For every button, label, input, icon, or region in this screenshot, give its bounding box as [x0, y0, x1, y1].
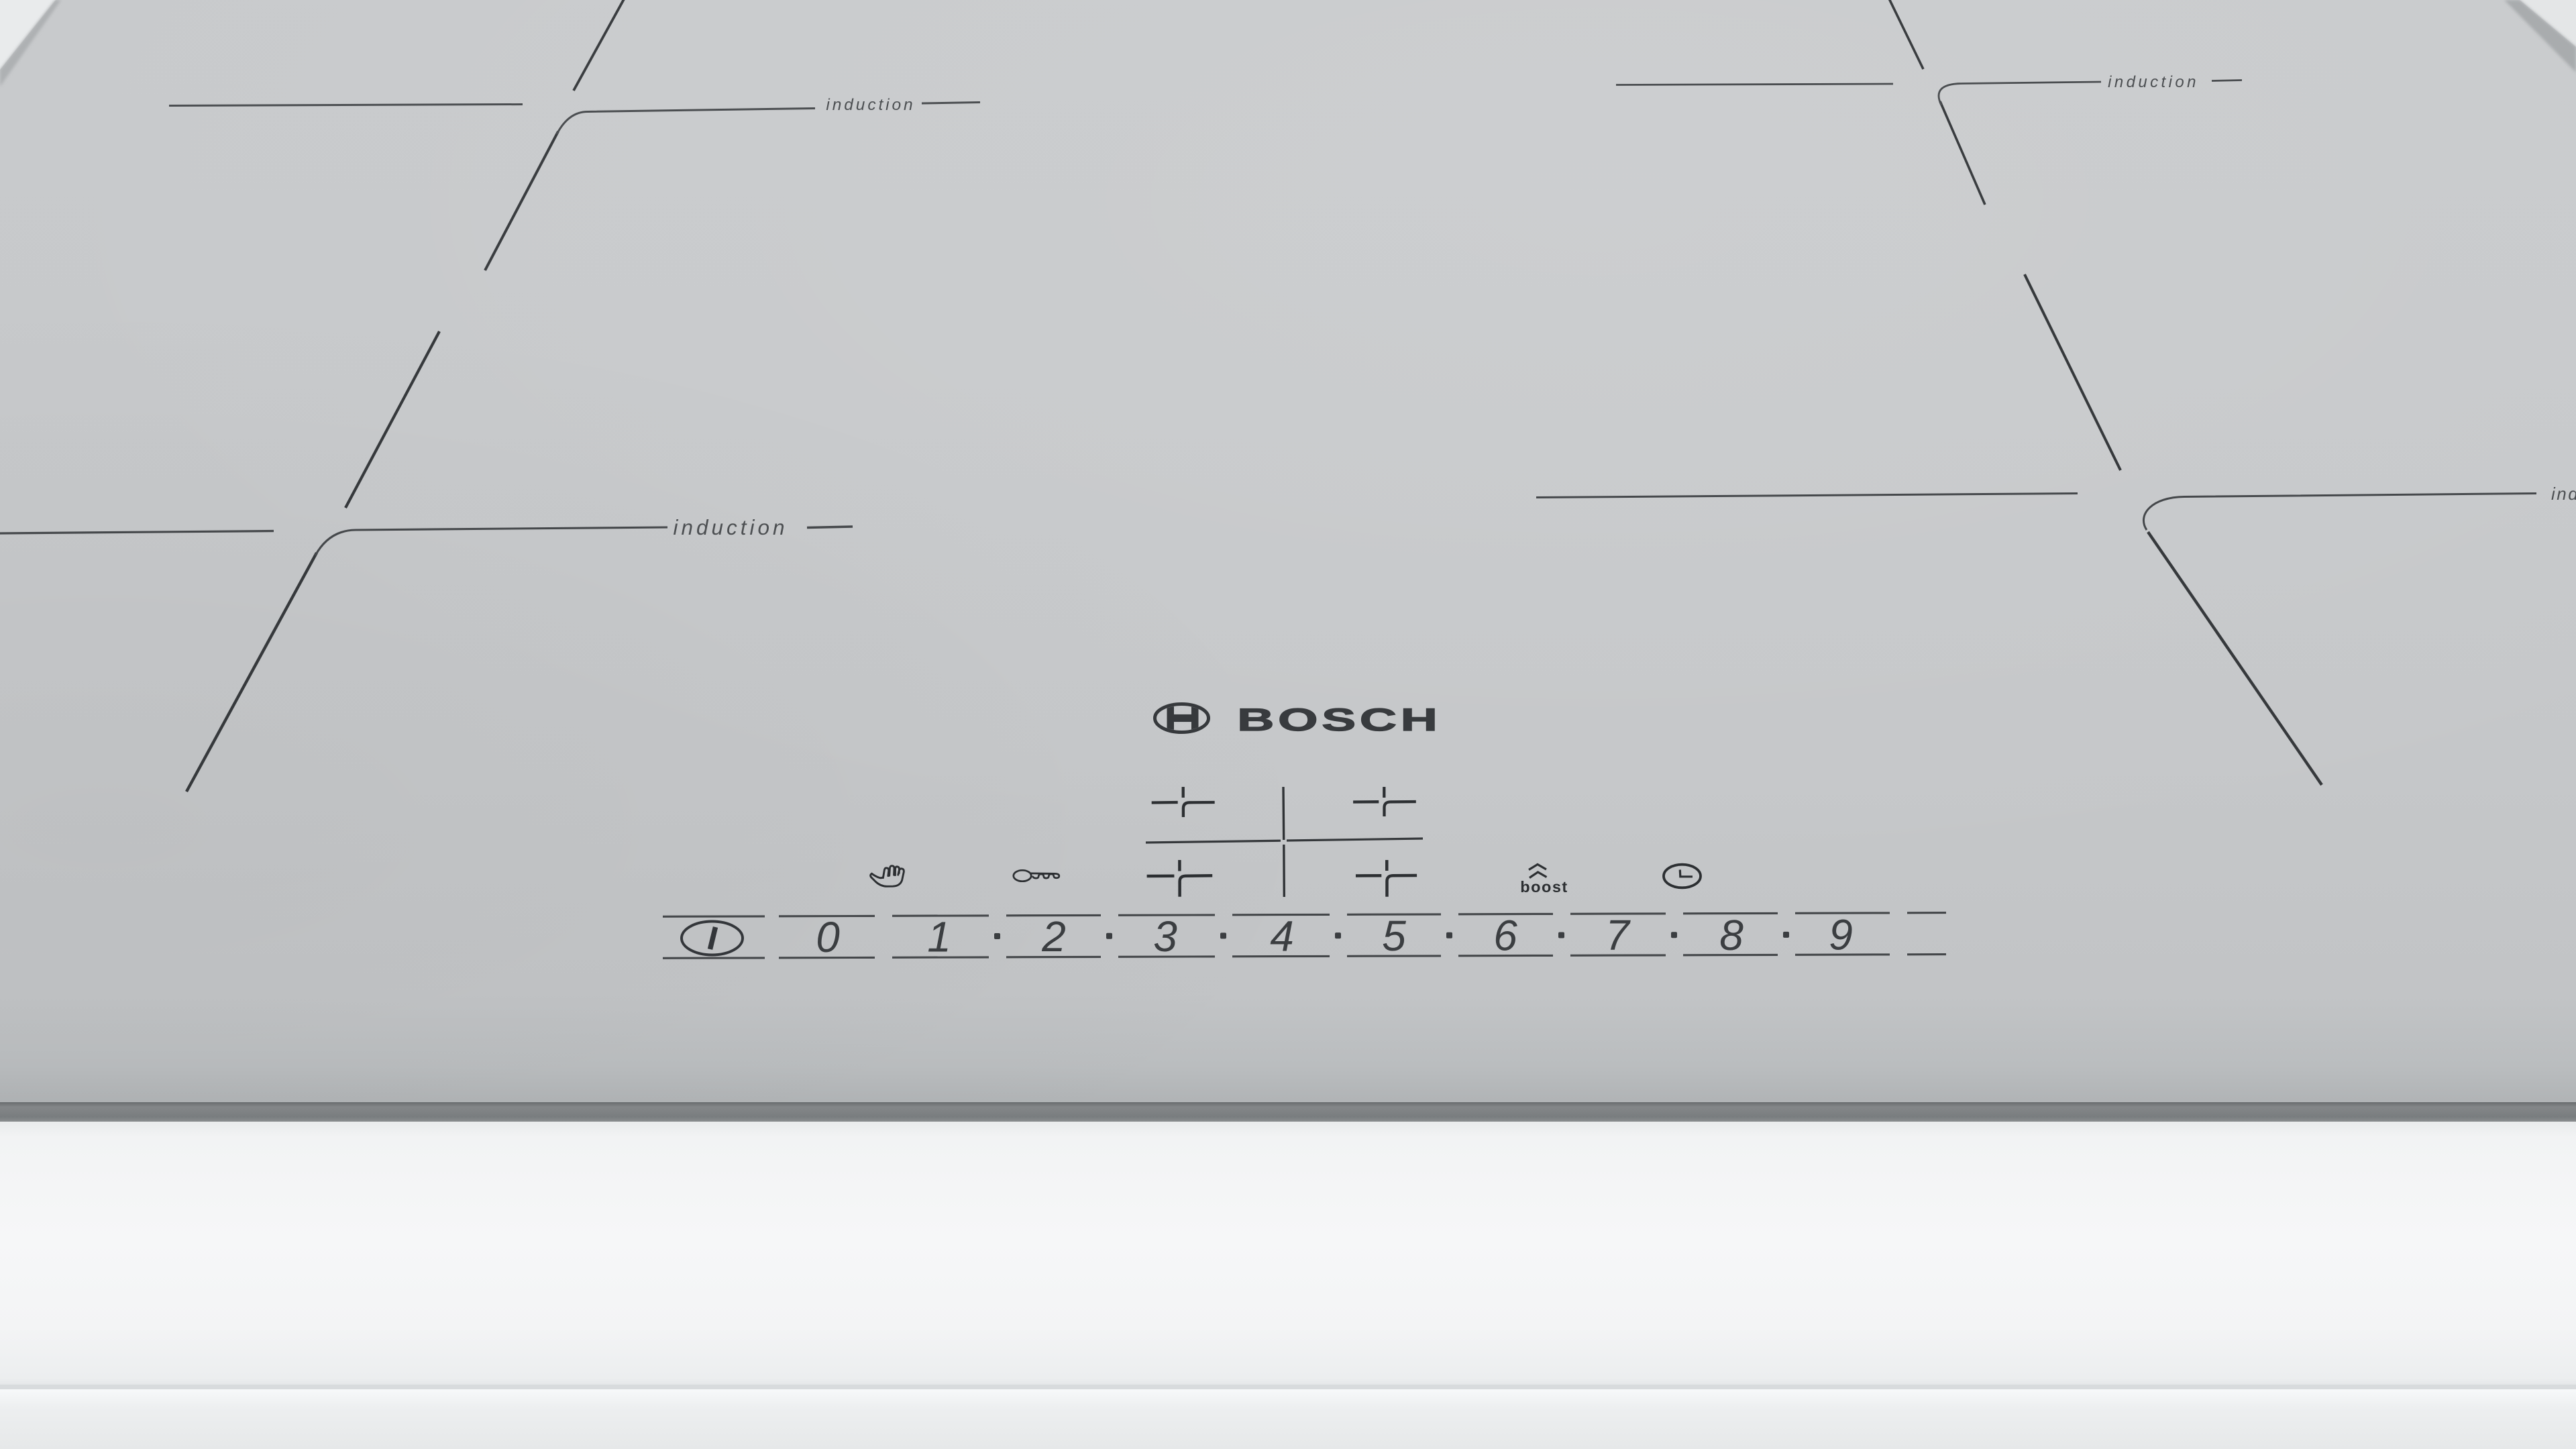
- svg-text:induction: induction: [2551, 484, 2576, 504]
- svg-text:4: 4: [1270, 912, 1294, 960]
- svg-text:2: 2: [1041, 912, 1066, 961]
- svg-text:7: 7: [1605, 911, 1631, 959]
- svg-text:induction: induction: [2108, 73, 2199, 91]
- svg-text:induction: induction: [673, 515, 788, 539]
- svg-text:BOSCH: BOSCH: [1237, 702, 1441, 738]
- svg-text:0: 0: [816, 913, 840, 961]
- svg-text:6: 6: [1493, 912, 1517, 960]
- svg-text:8: 8: [1719, 911, 1743, 959]
- svg-text:9: 9: [1829, 910, 1853, 959]
- svg-text:boost: boost: [1520, 878, 1568, 896]
- svg-text:1: 1: [927, 913, 951, 961]
- svg-text:induction: induction: [826, 96, 915, 114]
- svg-text:5: 5: [1382, 912, 1406, 960]
- svg-text:3: 3: [1153, 912, 1177, 961]
